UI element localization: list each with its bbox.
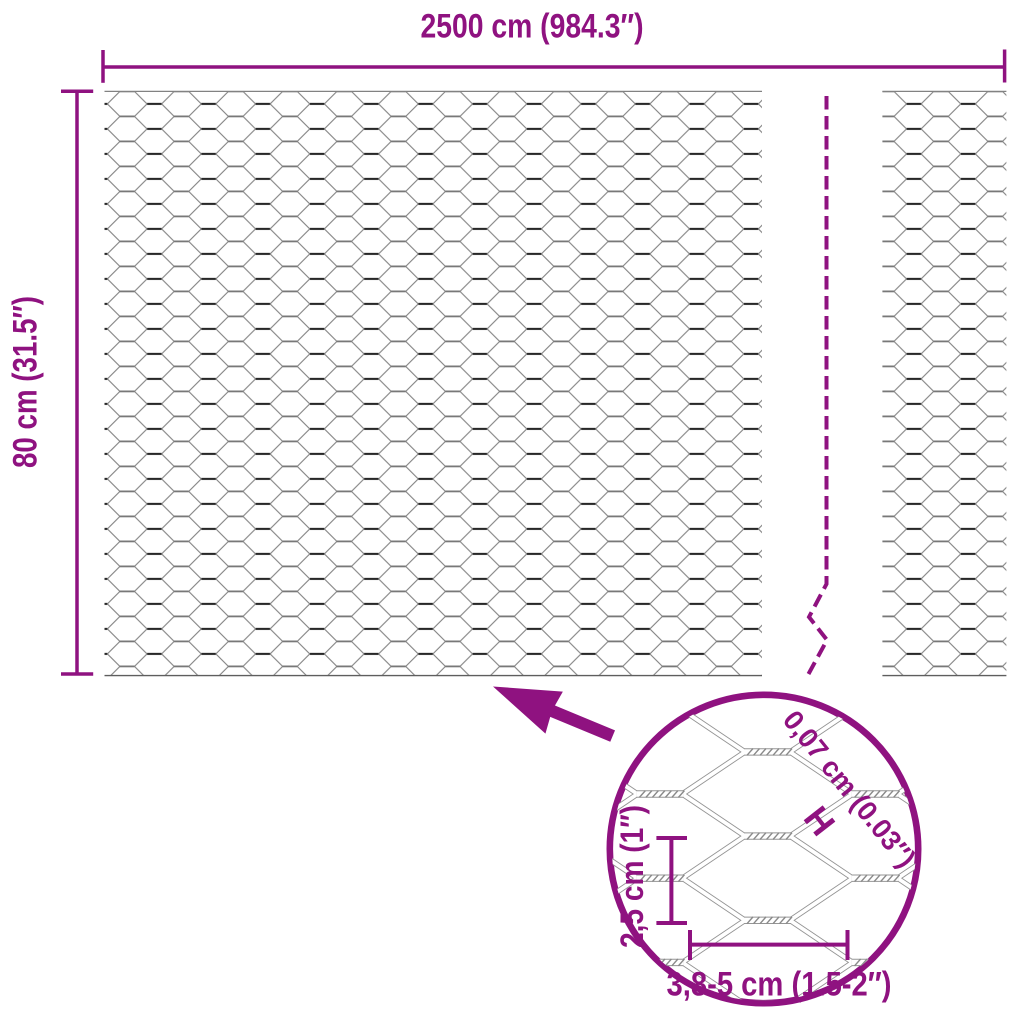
svg-text:2,5 cm (1″): 2,5 cm (1″) (614, 805, 650, 948)
svg-text:2500 cm (984.3″): 2500 cm (984.3″) (421, 7, 644, 45)
svg-text:3,8-5 cm (1.5-2″): 3,8-5 cm (1.5-2″) (667, 966, 892, 1004)
svg-text:80 cm (31.5″): 80 cm (31.5″) (7, 296, 45, 468)
